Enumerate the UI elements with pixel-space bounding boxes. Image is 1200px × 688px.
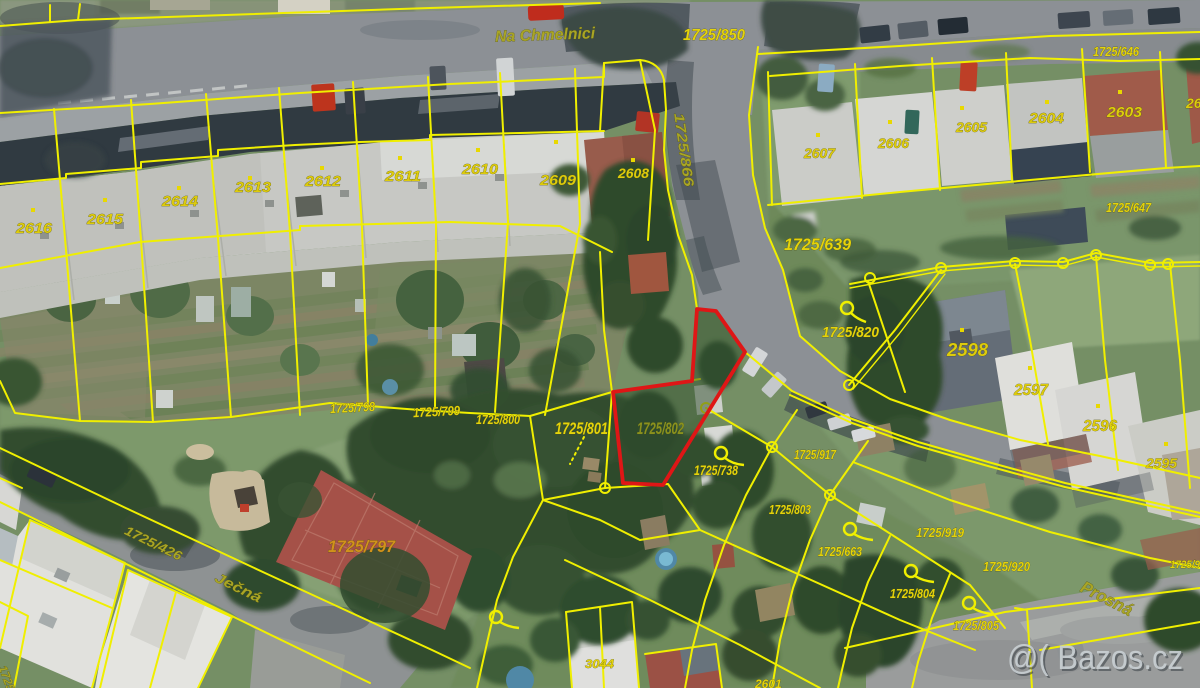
svg-text:2614: 2614	[161, 193, 199, 210]
svg-text:2608: 2608	[617, 165, 649, 181]
svg-text:2607: 2607	[803, 145, 836, 161]
svg-text:2605: 2605	[955, 119, 987, 135]
svg-text:2609: 2609	[539, 172, 577, 189]
svg-text:2597: 2597	[1013, 382, 1049, 399]
svg-text:2616: 2616	[15, 220, 53, 237]
svg-text:1725/663: 1725/663	[818, 544, 863, 559]
svg-text:2611: 2611	[384, 168, 421, 185]
svg-text:1725/647: 1725/647	[1106, 200, 1152, 215]
svg-text:1725/798: 1725/798	[330, 399, 376, 416]
svg-text:2603: 2603	[1106, 104, 1143, 121]
svg-text:1725/9: 1725/9	[1170, 559, 1200, 571]
svg-text:1725/805: 1725/805	[953, 618, 1000, 633]
svg-text:3044: 3044	[585, 657, 614, 671]
svg-text:2604: 2604	[1028, 110, 1065, 127]
svg-text:1725/639: 1725/639	[784, 235, 852, 254]
svg-text:1725/920: 1725/920	[983, 559, 1031, 574]
svg-text:1725/919: 1725/919	[916, 525, 965, 540]
svg-text:1725/917: 1725/917	[794, 447, 837, 462]
svg-text:2610: 2610	[461, 161, 499, 178]
svg-text:1725/801: 1725/801	[555, 419, 608, 438]
svg-text:1725/799: 1725/799	[413, 403, 461, 420]
svg-text:2596: 2596	[1082, 418, 1117, 435]
svg-text:2606: 2606	[877, 135, 909, 151]
svg-text:2601: 2601	[754, 677, 782, 688]
svg-text:1725/850: 1725/850	[683, 27, 745, 44]
svg-text:2595: 2595	[1145, 455, 1177, 471]
svg-text:1725/803: 1725/803	[769, 502, 812, 517]
svg-text:2613: 2613	[234, 179, 272, 196]
svg-text:2598: 2598	[946, 340, 988, 360]
svg-text:1725/800: 1725/800	[476, 412, 521, 427]
svg-text:2612: 2612	[304, 173, 342, 190]
svg-text:1725/820: 1725/820	[822, 324, 880, 341]
svg-text:26: 26	[1185, 95, 1200, 111]
svg-text:1725/646: 1725/646	[1093, 44, 1140, 59]
svg-text:Na Chmelnici: Na Chmelnici	[495, 25, 596, 45]
svg-text:2615: 2615	[86, 211, 124, 228]
svg-text:1725/804: 1725/804	[890, 586, 936, 601]
svg-text:@( Bazos.cz: @( Bazos.cz	[1007, 639, 1183, 677]
svg-text:1725/797: 1725/797	[328, 537, 396, 556]
svg-text:1725/738: 1725/738	[694, 462, 738, 478]
